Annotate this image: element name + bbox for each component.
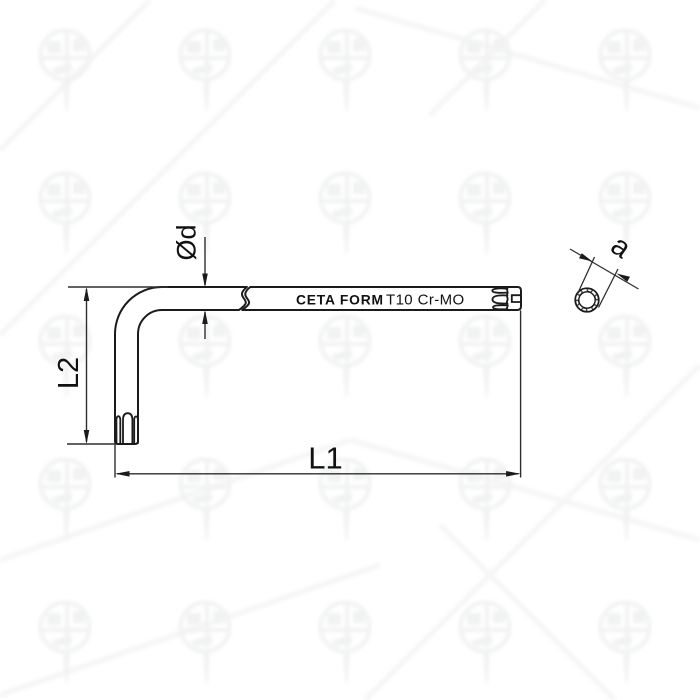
svg-text:L1: L1 — [308, 441, 342, 476]
svg-text:Ød: Ød — [172, 224, 202, 260]
svg-text:L2: L2 — [53, 357, 85, 389]
svg-text:T10 Cr-MO: T10 Cr-MO — [386, 292, 465, 309]
svg-text:CETA FORM: CETA FORM — [296, 292, 386, 307]
